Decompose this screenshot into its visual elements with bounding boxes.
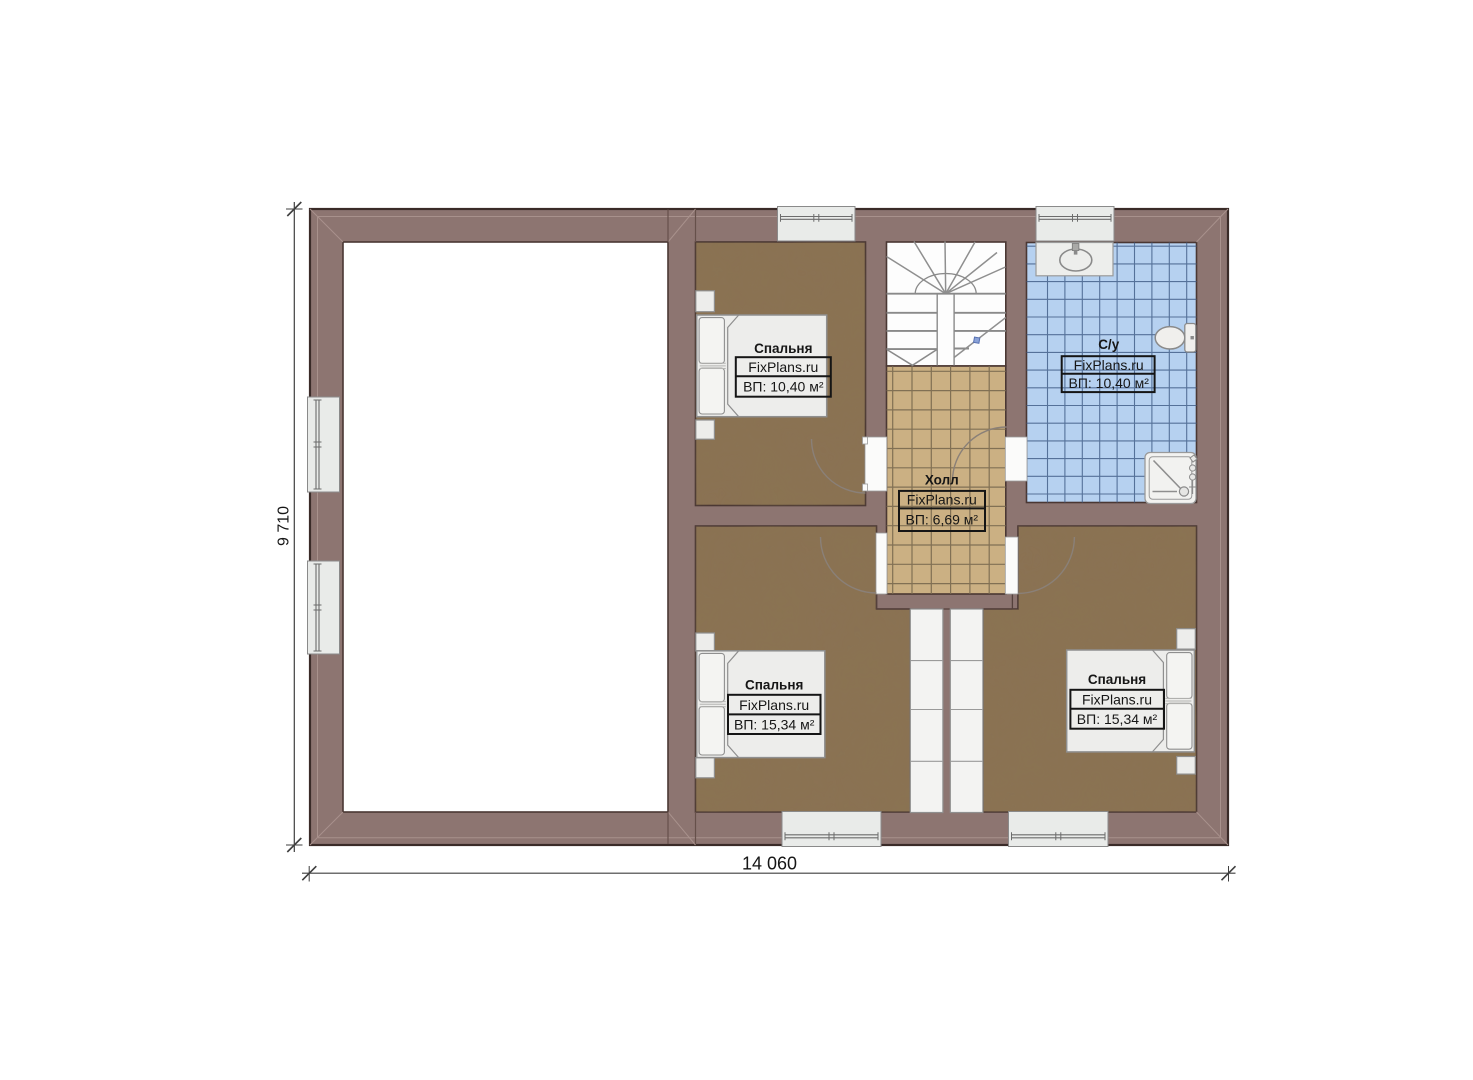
svg-text:ВП: 15,34 м²: ВП: 15,34 м² bbox=[734, 717, 815, 733]
svg-text:FixPlans.ru: FixPlans.ru bbox=[1074, 357, 1144, 373]
svg-text:ВП: 10,40 м²: ВП: 10,40 м² bbox=[1069, 375, 1150, 391]
svg-text:FixPlans.ru: FixPlans.ru bbox=[907, 492, 977, 508]
svg-text:FixPlans.ru: FixPlans.ru bbox=[1082, 692, 1152, 708]
svg-text:FixPlans.ru: FixPlans.ru bbox=[748, 359, 818, 375]
svg-text:Спальня: Спальня bbox=[754, 341, 812, 356]
svg-text:9 710: 9 710 bbox=[276, 506, 293, 546]
svg-text:Холл: Холл bbox=[925, 473, 959, 488]
svg-text:Спальня: Спальня bbox=[745, 678, 803, 693]
svg-text:Спальня: Спальня bbox=[1088, 672, 1146, 687]
svg-text:14 060: 14 060 bbox=[742, 854, 797, 874]
svg-text:ВП: 10,40 м²: ВП: 10,40 м² bbox=[743, 379, 824, 395]
svg-text:ВП: 15,34 м²: ВП: 15,34 м² bbox=[1077, 711, 1158, 727]
svg-text:С/у: С/у bbox=[1098, 337, 1120, 352]
svg-text:ВП: 6,69 м²: ВП: 6,69 м² bbox=[905, 512, 978, 528]
svg-text:FixPlans.ru: FixPlans.ru bbox=[739, 697, 809, 713]
